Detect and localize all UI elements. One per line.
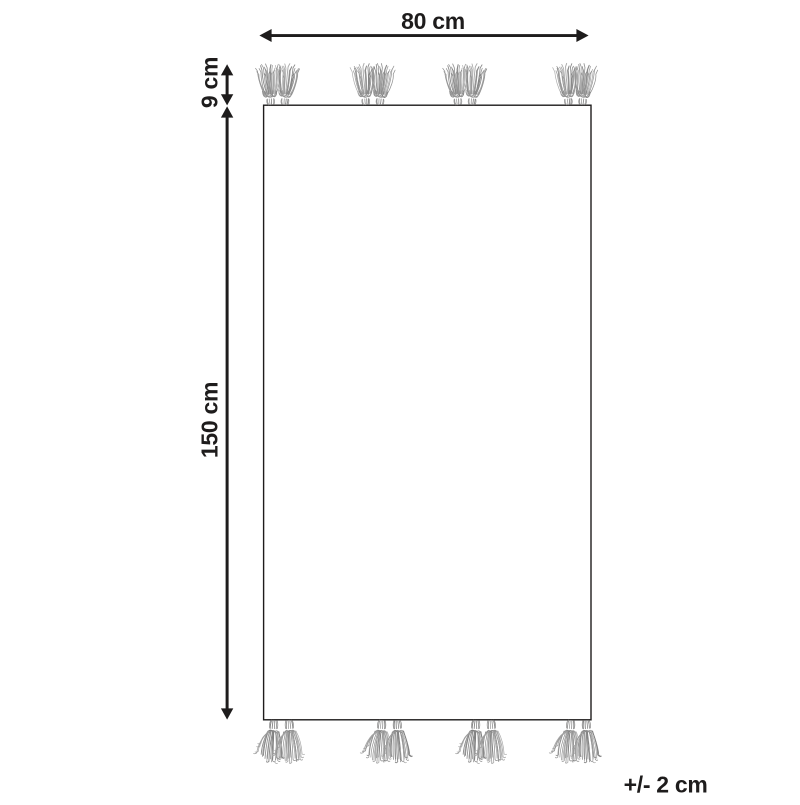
svg-text:+/- 2 cm: +/- 2 cm	[624, 771, 708, 797]
svg-text:150 cm: 150 cm	[197, 382, 223, 458]
svg-text:9 cm: 9 cm	[197, 57, 223, 108]
svg-text:80 cm: 80 cm	[401, 8, 465, 34]
